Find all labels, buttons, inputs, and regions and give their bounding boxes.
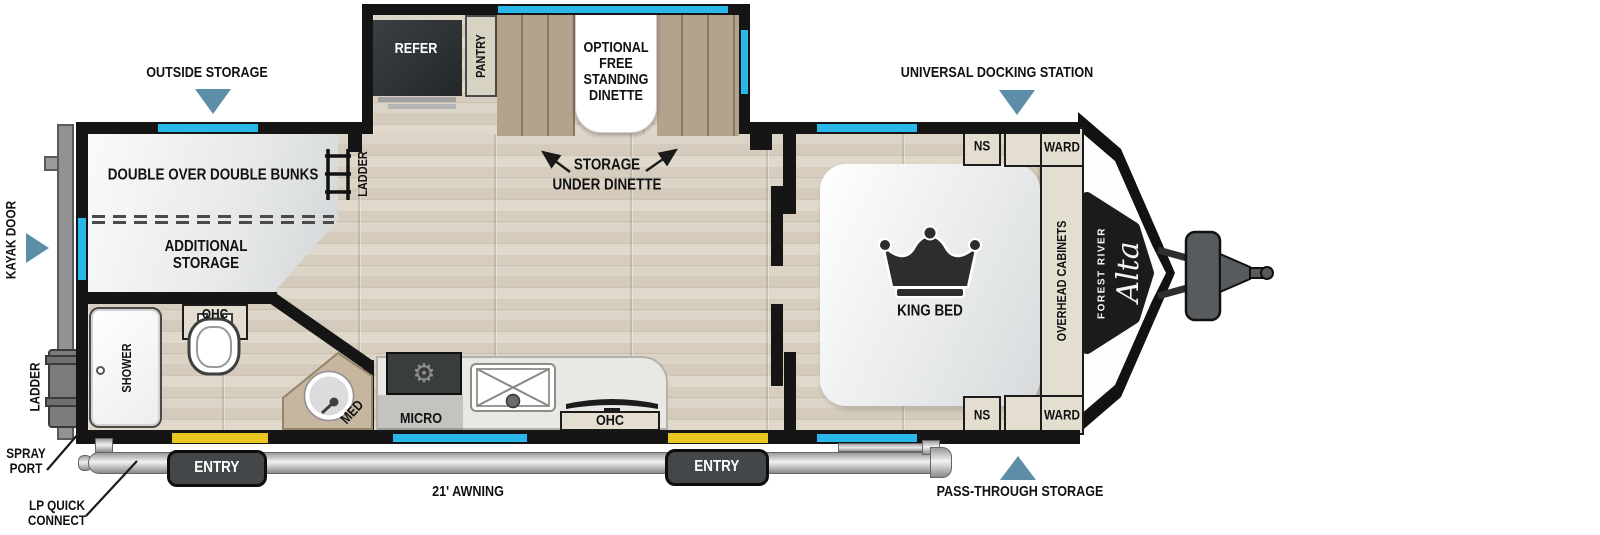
spray-port-label: SPRAY PORT	[3, 446, 48, 476]
hitch-icon	[1158, 232, 1273, 320]
brand-maker-label: FOREST RIVER	[1098, 227, 1109, 319]
bedroom-partition	[771, 186, 783, 266]
kayak-door-marker	[78, 218, 86, 280]
window	[158, 124, 258, 132]
triangle-down-icon	[999, 90, 1035, 115]
window	[741, 30, 748, 94]
bedroom-partition	[784, 352, 796, 430]
wall	[76, 122, 88, 444]
bunks-label: DOUBLE OVER DOUBLE BUNKS	[108, 168, 319, 185]
bathroom-wall	[76, 292, 277, 304]
pass-through-storage-label: PASS-THROUGH STORAGE	[937, 484, 1104, 500]
nightstand-label: NS	[974, 139, 990, 154]
entry-badge: ENTRY	[665, 449, 769, 486]
kitchen-ohc-label: OHC	[596, 413, 624, 429]
floorplan-diagram: ⚙	[0, 0, 1600, 535]
bumper-end-cap	[44, 156, 59, 171]
king-bed-label: KING BED	[897, 304, 963, 321]
triangle-down-icon	[195, 89, 231, 114]
slide-out-wall	[362, 4, 373, 134]
refrigerator	[370, 20, 462, 96]
entry-label: ENTRY	[694, 459, 739, 476]
outside-storage-label: OUTSIDE STORAGE	[146, 65, 268, 81]
wardrobe-label: WARD	[1044, 140, 1080, 155]
universal-docking-station-label: UNIVERSAL DOCKING STATION	[901, 65, 1094, 81]
bunk-fold-line	[92, 215, 334, 218]
wardrobe-label: WARD	[1044, 408, 1080, 423]
entry-door-marker	[172, 433, 268, 443]
window	[498, 6, 728, 13]
refer-stand	[378, 97, 456, 102]
cooktop-icon: ⚙	[386, 352, 462, 395]
dinette-bench	[657, 15, 739, 136]
storage-under-dinette-label: UNDER DINETTE	[552, 178, 661, 195]
wall-post	[750, 122, 772, 150]
refer-label: REFER	[395, 41, 438, 57]
bathroom-wall	[363, 360, 374, 430]
shower-label: SHOWER	[120, 343, 134, 392]
nightstand-label: NS	[974, 408, 990, 423]
bedroom-partition	[771, 304, 783, 386]
additional-storage-label: ADDITIONAL STORAGE	[160, 239, 252, 273]
window	[817, 124, 917, 132]
pantry-label: PANTRY	[474, 34, 488, 78]
triangle-right-icon	[26, 233, 49, 263]
dinette-label: OPTIONAL FREE STANDING DINETTE	[582, 40, 649, 104]
bedroom-partition	[783, 134, 796, 214]
overhead-cabinets-label: OVERHEAD CABINETS	[1055, 221, 1069, 342]
micro-label: MICRO	[400, 411, 442, 427]
awning-arm	[838, 443, 932, 452]
rear-ladder-label: LADDER	[28, 362, 43, 411]
window	[393, 434, 527, 442]
wardrobe-divider	[1040, 397, 1042, 433]
bunk-fold-line	[92, 221, 334, 224]
awning-end-cap	[930, 447, 952, 478]
window	[817, 434, 917, 442]
awning-bracket	[95, 438, 113, 453]
entry-door-marker	[668, 433, 768, 443]
triangle-up-icon	[1000, 456, 1036, 480]
storage-under-dinette-label: STORAGE	[574, 158, 640, 175]
brand-model-label: Alta	[1113, 241, 1145, 302]
kitchen-sink-icon	[470, 363, 556, 412]
lp-quick-connect-label: LP QUICK CONNECT	[20, 498, 94, 528]
kayak-door-label: KAYAK DOOR	[4, 201, 19, 279]
wardrobe-divider	[1040, 129, 1042, 165]
entry-label: ENTRY	[194, 460, 239, 477]
wall-post	[348, 122, 362, 152]
entry-badge: ENTRY	[167, 450, 267, 487]
bathroom-ohc-label: OHC	[202, 307, 228, 322]
bunk-ladder-label: LADDER	[356, 151, 370, 197]
awning-label: 21' AWNING	[432, 484, 504, 500]
shower-head-icon	[96, 366, 105, 375]
refer-stand	[388, 104, 456, 109]
dinette-bench	[497, 15, 575, 136]
king-bed	[820, 164, 1040, 406]
